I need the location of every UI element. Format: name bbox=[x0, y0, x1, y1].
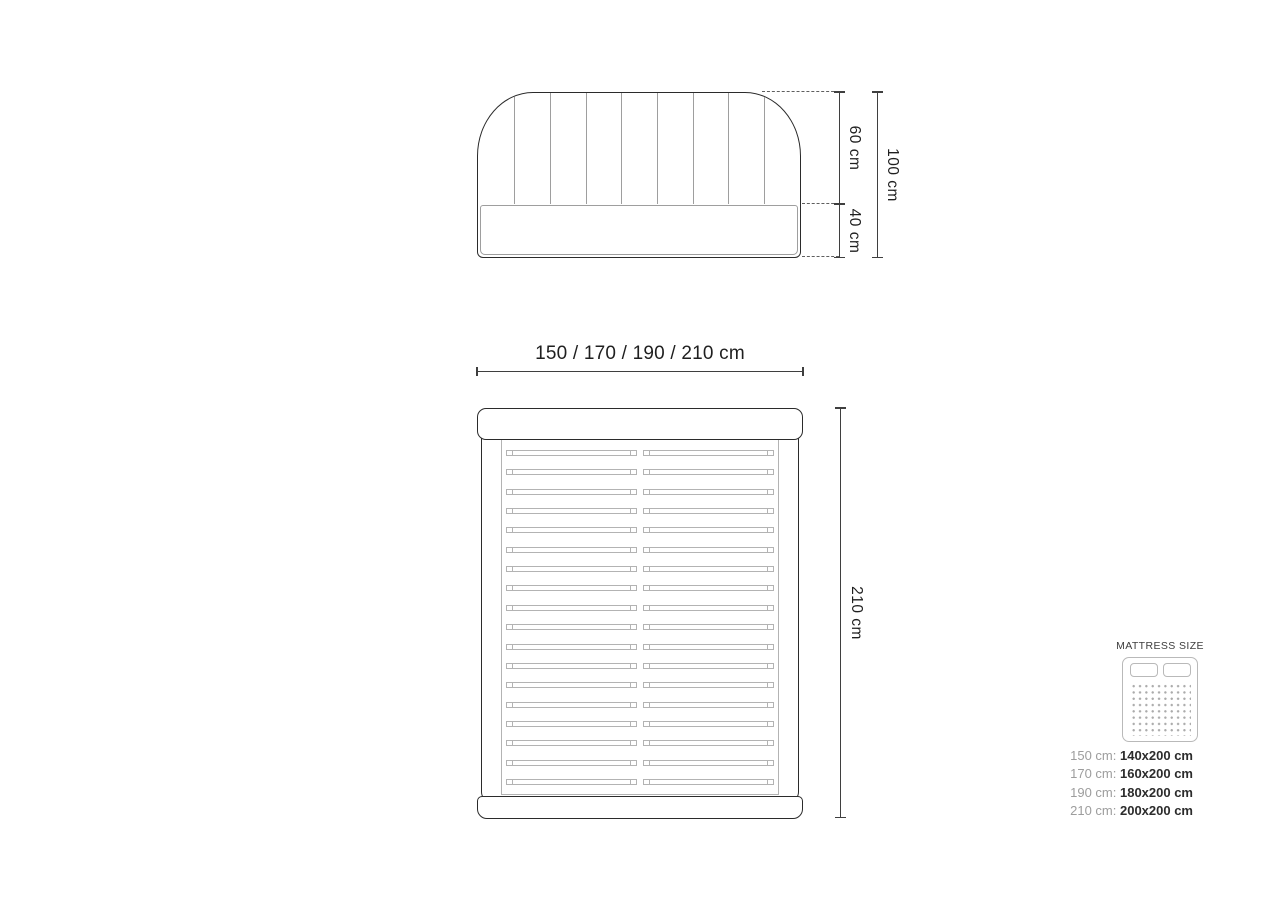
dimension-line-60-40 bbox=[839, 92, 840, 258]
slat-holder bbox=[630, 740, 637, 746]
slat-holder bbox=[643, 663, 650, 669]
tick bbox=[834, 91, 845, 93]
slat-holder bbox=[506, 779, 513, 785]
slat-row bbox=[506, 644, 774, 650]
tick bbox=[835, 407, 846, 409]
headboard-channel-line bbox=[621, 93, 622, 204]
slat-row bbox=[506, 585, 774, 591]
slat-row bbox=[506, 740, 774, 746]
tick bbox=[476, 367, 478, 376]
slat-holder bbox=[643, 702, 650, 708]
slat bbox=[643, 740, 774, 746]
slat-holder bbox=[643, 760, 650, 766]
dim-label-100cm: 100 cm bbox=[883, 148, 901, 202]
slat bbox=[506, 644, 637, 650]
slat-holder bbox=[643, 721, 650, 727]
slat bbox=[506, 682, 637, 688]
slat-holder bbox=[630, 585, 637, 591]
slat bbox=[506, 450, 637, 456]
headboard-top-view-bar bbox=[477, 408, 803, 440]
slat-holder bbox=[630, 702, 637, 708]
tick bbox=[872, 257, 883, 259]
dashed-line-top bbox=[762, 91, 839, 92]
slat-row bbox=[506, 682, 774, 688]
slat-holder bbox=[767, 566, 774, 572]
slat bbox=[643, 721, 774, 727]
slat-holder bbox=[767, 450, 774, 456]
slat-holder bbox=[643, 682, 650, 688]
slat bbox=[643, 489, 774, 495]
headboard-channel-line bbox=[657, 93, 658, 204]
slat-holder bbox=[767, 547, 774, 553]
slat-holder bbox=[630, 489, 637, 495]
slat-holder bbox=[767, 682, 774, 688]
slat bbox=[643, 644, 774, 650]
slat bbox=[506, 547, 637, 553]
slat-holder bbox=[630, 760, 637, 766]
size-row-label: 170 cm: bbox=[1070, 766, 1120, 781]
slat-holder bbox=[506, 682, 513, 688]
slat-holder bbox=[643, 450, 650, 456]
slat bbox=[643, 547, 774, 553]
mattress-size-title: MATTRESS SIZE bbox=[1104, 640, 1216, 652]
slat-holder bbox=[630, 624, 637, 630]
mattress-size-row: 170 cm: 160x200 cm bbox=[1040, 765, 1193, 783]
slat-row bbox=[506, 450, 774, 456]
slat-holder bbox=[767, 644, 774, 650]
headboard-channel-line bbox=[693, 93, 694, 204]
size-row-label: 190 cm: bbox=[1070, 785, 1120, 800]
slat bbox=[506, 702, 637, 708]
mattress-size-row: 210 cm: 200x200 cm bbox=[1040, 802, 1193, 820]
slat bbox=[506, 721, 637, 727]
slat bbox=[643, 566, 774, 572]
slat-holder bbox=[506, 624, 513, 630]
slat bbox=[506, 740, 637, 746]
slat bbox=[506, 663, 637, 669]
slat bbox=[643, 624, 774, 630]
slat bbox=[643, 779, 774, 785]
slat-holder bbox=[506, 644, 513, 650]
slat-holder bbox=[630, 469, 637, 475]
headboard-channel-line bbox=[728, 93, 729, 204]
slat-holder bbox=[630, 547, 637, 553]
slat bbox=[643, 508, 774, 514]
slat-holder bbox=[630, 682, 637, 688]
slat-holder bbox=[506, 566, 513, 572]
slat-holder bbox=[506, 489, 513, 495]
mattress-icon bbox=[1122, 657, 1198, 742]
slat-holder bbox=[643, 624, 650, 630]
slat-holder bbox=[643, 644, 650, 650]
tick bbox=[872, 91, 883, 93]
dim-label-widths: 150 / 170 / 190 / 210 cm bbox=[477, 343, 803, 365]
slat-holder bbox=[506, 508, 513, 514]
dimension-line-210 bbox=[840, 408, 841, 818]
headboard-channel-line bbox=[764, 93, 765, 204]
slat-holder bbox=[643, 547, 650, 553]
size-row-label: 210 cm: bbox=[1070, 803, 1120, 818]
slat-row bbox=[506, 469, 774, 475]
mattress-dots-pattern bbox=[1129, 682, 1191, 736]
slat-holder bbox=[767, 760, 774, 766]
dim-label-40cm: 40 cm bbox=[845, 209, 863, 254]
headboard-channel-line bbox=[550, 93, 551, 204]
slat bbox=[506, 469, 637, 475]
slat bbox=[643, 585, 774, 591]
slat-holder bbox=[630, 508, 637, 514]
slat-holder bbox=[767, 527, 774, 533]
slat-holder bbox=[630, 566, 637, 572]
slat-holder bbox=[630, 644, 637, 650]
slat-holder bbox=[630, 527, 637, 533]
slat-holder bbox=[767, 779, 774, 785]
slat bbox=[643, 760, 774, 766]
tick bbox=[835, 817, 846, 819]
slat-holder bbox=[767, 585, 774, 591]
slat-holder bbox=[506, 527, 513, 533]
slat-holder bbox=[643, 605, 650, 611]
slat bbox=[506, 566, 637, 572]
slat-row bbox=[506, 702, 774, 708]
slat bbox=[506, 624, 637, 630]
slat bbox=[643, 605, 774, 611]
slat-holder bbox=[643, 527, 650, 533]
slat-holder bbox=[767, 663, 774, 669]
footboard-top-view-bar bbox=[477, 796, 803, 819]
slat-holder bbox=[506, 547, 513, 553]
size-row-value: 160x200 cm bbox=[1120, 766, 1193, 781]
slat-row bbox=[506, 721, 774, 727]
slat-grid bbox=[506, 450, 774, 790]
slat-holder bbox=[506, 760, 513, 766]
dim-label-60cm: 60 cm bbox=[845, 126, 863, 171]
slat bbox=[506, 760, 637, 766]
slat-holder bbox=[767, 702, 774, 708]
slat bbox=[643, 663, 774, 669]
dimension-line-width bbox=[477, 371, 803, 372]
slat-holder bbox=[630, 779, 637, 785]
slat-row bbox=[506, 508, 774, 514]
tick bbox=[802, 367, 804, 376]
size-row-value: 180x200 cm bbox=[1120, 785, 1193, 800]
slat-holder bbox=[767, 605, 774, 611]
slat-holder bbox=[643, 779, 650, 785]
slat-holder bbox=[643, 508, 650, 514]
dim-label-210cm: 210 cm bbox=[847, 586, 865, 640]
size-row-value: 140x200 cm bbox=[1120, 748, 1193, 763]
slat bbox=[506, 585, 637, 591]
slat bbox=[506, 527, 637, 533]
slat-holder bbox=[767, 508, 774, 514]
slat-row bbox=[506, 489, 774, 495]
slat-holder bbox=[506, 469, 513, 475]
slat-holder bbox=[506, 663, 513, 669]
slat-holder bbox=[643, 469, 650, 475]
slat-holder bbox=[630, 721, 637, 727]
tick bbox=[834, 257, 845, 259]
dimension-line-100 bbox=[877, 92, 878, 258]
slat-holder bbox=[643, 740, 650, 746]
slat-holder bbox=[506, 740, 513, 746]
slat-holder bbox=[630, 605, 637, 611]
pillow-left-icon bbox=[1130, 663, 1158, 677]
slat bbox=[643, 682, 774, 688]
slat bbox=[506, 605, 637, 611]
slat-holder bbox=[630, 450, 637, 456]
slat-holder bbox=[506, 450, 513, 456]
pillow-right-icon bbox=[1163, 663, 1191, 677]
slat-holder bbox=[643, 566, 650, 572]
slat-holder bbox=[767, 489, 774, 495]
mattress-size-row: 150 cm: 140x200 cm bbox=[1040, 747, 1193, 765]
slat-holder bbox=[767, 721, 774, 727]
slat-row bbox=[506, 605, 774, 611]
slat-holder bbox=[630, 663, 637, 669]
slat-holder bbox=[506, 585, 513, 591]
slat bbox=[643, 469, 774, 475]
slat-holder bbox=[767, 469, 774, 475]
slat-row bbox=[506, 547, 774, 553]
slat bbox=[506, 508, 637, 514]
slat bbox=[643, 450, 774, 456]
slat-row bbox=[506, 527, 774, 533]
slat-row bbox=[506, 566, 774, 572]
size-row-value: 200x200 cm bbox=[1120, 803, 1193, 818]
headboard-channel-line bbox=[514, 93, 515, 204]
slat-row bbox=[506, 624, 774, 630]
tick bbox=[834, 203, 845, 205]
slat-row bbox=[506, 663, 774, 669]
slat-holder bbox=[506, 721, 513, 727]
slat-row bbox=[506, 760, 774, 766]
size-row-label: 150 cm: bbox=[1070, 748, 1120, 763]
slat bbox=[506, 489, 637, 495]
slat-holder bbox=[767, 740, 774, 746]
bed-dimensions-diagram: 60 cm 40 cm 100 cm 150 / 170 / 190 / 210… bbox=[0, 0, 1280, 905]
mattress-size-table: 150 cm: 140x200 cm170 cm: 160x200 cm190 … bbox=[1040, 747, 1193, 821]
slat-holder bbox=[643, 489, 650, 495]
slat bbox=[643, 527, 774, 533]
slat-holder bbox=[643, 585, 650, 591]
slat-row bbox=[506, 779, 774, 785]
mattress-size-row: 190 cm: 180x200 cm bbox=[1040, 784, 1193, 802]
headboard-front-view bbox=[477, 92, 801, 258]
slat bbox=[643, 702, 774, 708]
slat-holder bbox=[506, 605, 513, 611]
headboard-channel-line bbox=[586, 93, 587, 204]
slat-holder bbox=[767, 624, 774, 630]
slat bbox=[506, 779, 637, 785]
slat-holder bbox=[506, 702, 513, 708]
headboard-base-panel bbox=[480, 205, 798, 255]
